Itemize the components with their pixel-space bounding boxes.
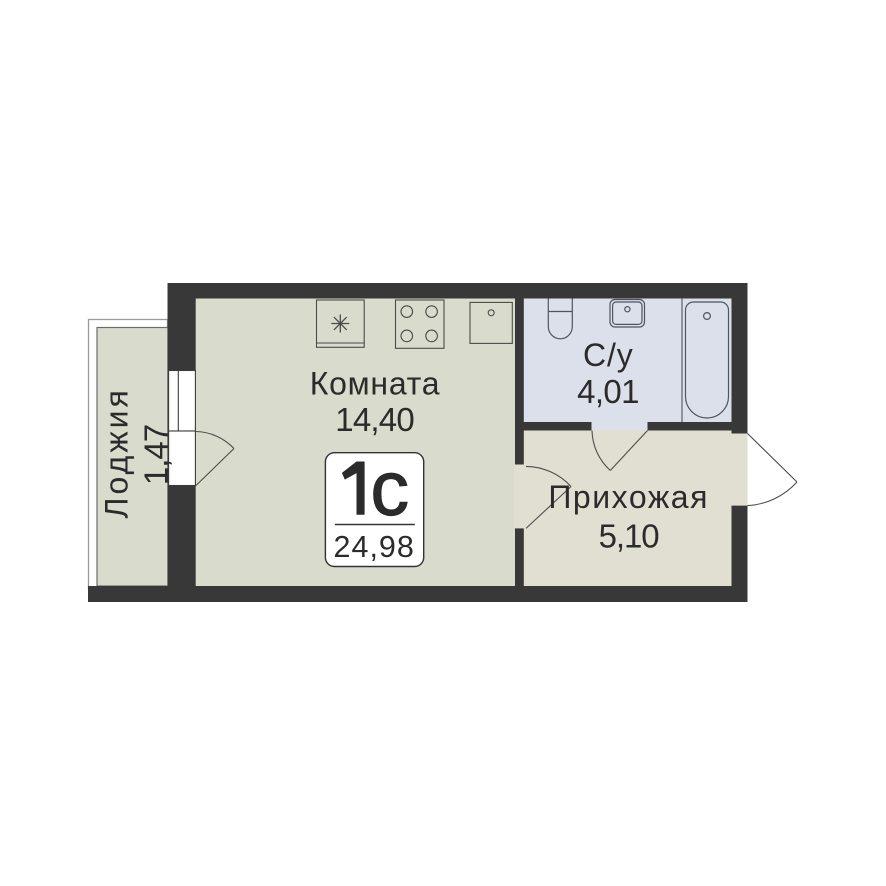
svg-text:14,40: 14,40	[335, 401, 414, 438]
svg-text:с: с	[371, 446, 410, 532]
svg-text:С/у: С/у	[583, 337, 634, 373]
svg-text:4,01: 4,01	[577, 373, 639, 410]
svg-text:Прихожая: Прихожая	[548, 479, 709, 515]
svg-text:Комната: Комната	[310, 366, 441, 402]
svg-text:5,10: 5,10	[599, 518, 660, 555]
svg-text:1,47: 1,47	[137, 425, 174, 485]
svg-text:Лоджия: Лоджия	[98, 387, 134, 518]
svg-text:24,98: 24,98	[334, 530, 415, 564]
